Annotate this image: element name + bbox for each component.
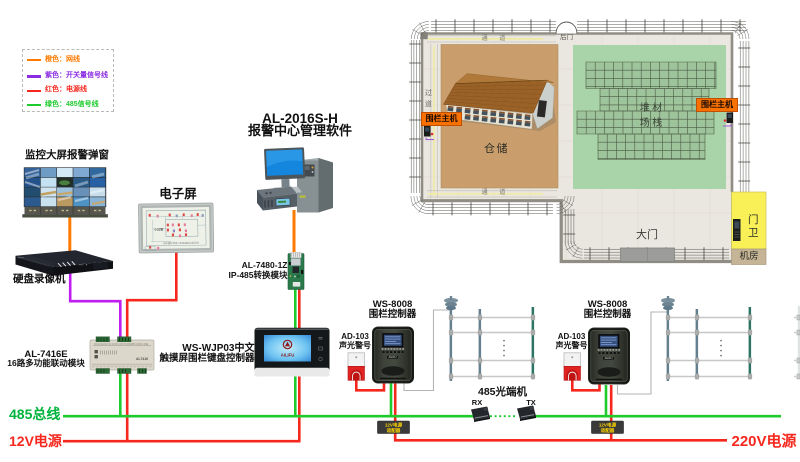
svg-text:适配器: 适配器 (387, 427, 401, 434)
svg-text:AILIFU: AILIFU (281, 353, 295, 358)
svg-text:AILIFU: AILIFU (604, 356, 612, 360)
svg-text:AILIFU: AILIFU (388, 355, 396, 359)
svg-text:DC12V/24V IN OUT1 OUT2 RS485: DC12V/24V IN OUT1 OUT2 RS485 COM LINE (94, 342, 148, 346)
svg-text:小远警: 小远警 (154, 227, 164, 232)
svg-text:电子围栏状态入内监控综合显示屏: 电子围栏状态入内监控综合显示屏 (163, 241, 200, 246)
svg-text:AL7416: AL7416 (136, 357, 148, 361)
svg-text:适配器: 适配器 (601, 427, 615, 434)
